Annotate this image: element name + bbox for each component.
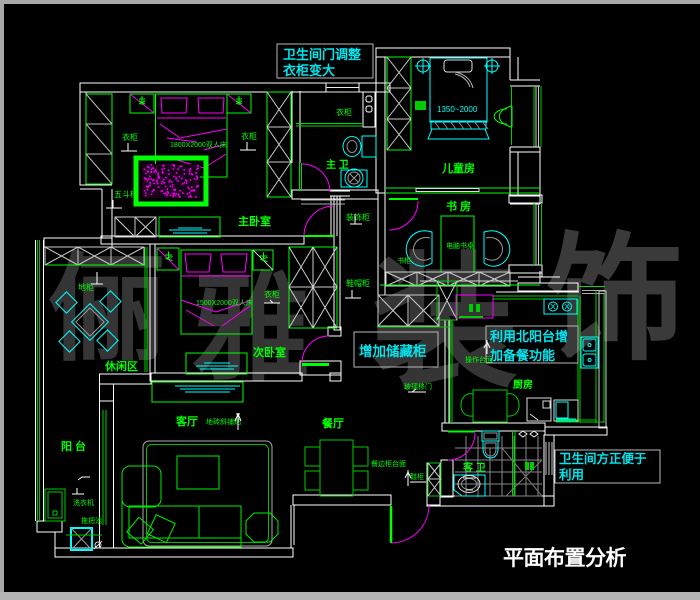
svg-text:玻璃移门: 玻璃移门 — [404, 382, 432, 391]
svg-text:1500X2000双人床: 1500X2000双人床 — [196, 298, 253, 307]
svg-text:衣柜变大: 衣柜变大 — [283, 63, 335, 78]
svg-text:加备餐功能: 加备餐功能 — [489, 348, 555, 363]
svg-text:休闲区: 休闲区 — [104, 359, 138, 373]
svg-text:电脑书桌: 电脑书桌 — [446, 241, 474, 250]
svg-text:儿童房: 儿童房 — [441, 161, 475, 175]
svg-text:客厅: 客厅 — [175, 414, 198, 428]
svg-text:1350~2000: 1350~2000 — [437, 105, 478, 114]
svg-text:衣柜: 衣柜 — [122, 132, 138, 142]
svg-text:主卧室: 主卧室 — [238, 214, 271, 228]
svg-text:鞋柜: 鞋柜 — [410, 472, 424, 481]
svg-text:主 卫: 主 卫 — [326, 158, 349, 171]
svg-text:1800X2000双人床: 1800X2000双人床 — [170, 140, 227, 149]
svg-text:餐厅: 餐厅 — [321, 416, 344, 430]
svg-text:衣柜: 衣柜 — [264, 289, 280, 299]
svg-text:平面布置分析: 平面布置分析 — [503, 546, 626, 570]
svg-text:饰: 饰 — [546, 223, 684, 377]
svg-text:鞋帽柜: 鞋帽柜 — [346, 278, 370, 288]
svg-text:利用: 利用 — [559, 467, 584, 482]
svg-text:次卧室: 次卧室 — [253, 345, 286, 359]
svg-text:衣柜: 衣柜 — [336, 107, 352, 117]
svg-text:拖把池: 拖把池 — [81, 516, 102, 525]
svg-text:雅: 雅 — [192, 264, 310, 396]
svg-text:卫生间门调整: 卫生间门调整 — [283, 47, 362, 62]
svg-text:书柜: 书柜 — [397, 256, 411, 265]
svg-text:装饰柜: 装饰柜 — [346, 212, 370, 222]
svg-text:五斗柜: 五斗柜 — [114, 189, 138, 199]
svg-text:阳 台: 阳 台 — [61, 439, 86, 453]
svg-text:书 房: 书 房 — [446, 199, 471, 213]
svg-text:卫生间方正便于: 卫生间方正便于 — [559, 451, 647, 466]
svg-text:增加储藏柜: 增加储藏柜 — [359, 343, 427, 359]
svg-text:厨房: 厨房 — [513, 378, 533, 391]
svg-text:餐边柜台面: 餐边柜台面 — [371, 459, 406, 468]
svg-text:衣柜: 衣柜 — [241, 131, 257, 141]
svg-text:洗衣机: 洗衣机 — [73, 498, 94, 507]
svg-text:利用北阳台增: 利用北阳台增 — [490, 329, 568, 344]
svg-text:俪: 俪 — [48, 244, 166, 376]
